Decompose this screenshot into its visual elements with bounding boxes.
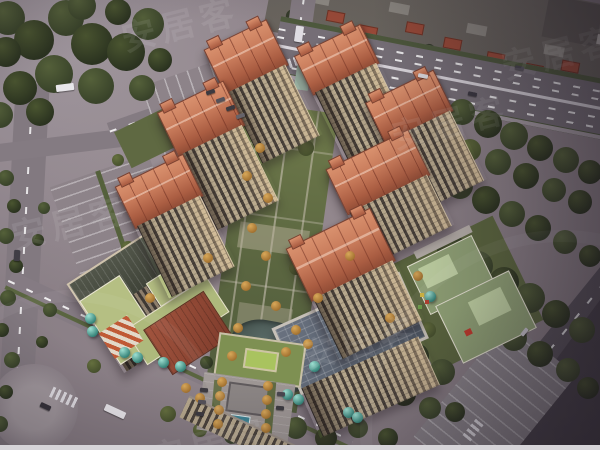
sphere-tree: [293, 394, 304, 405]
ornamental-tree: [263, 381, 273, 391]
ornamental-tree: [261, 251, 271, 261]
ornamental-tree: [203, 253, 213, 263]
ornamental-tree: [313, 293, 323, 303]
ornamental-tree: [233, 323, 243, 333]
vehicle: [277, 392, 285, 397]
tree-cluster: [26, 98, 54, 126]
ornamental-tree: [281, 347, 291, 357]
ornamental-tree: [271, 301, 281, 311]
tree-cluster: [9, 259, 23, 273]
far-building: [389, 2, 411, 16]
tree-cluster: [578, 160, 600, 184]
ornamental-tree: [242, 171, 252, 181]
tree-cluster: [112, 154, 124, 166]
tree-cluster: [527, 135, 553, 161]
aerial-rendering: 安居客 安居客 安居客 安居客 安居客 安居客: [0, 0, 600, 450]
far-red-roof: [405, 21, 425, 35]
tree-cluster: [472, 186, 500, 214]
tree-cluster: [499, 201, 525, 227]
ornamental-tree: [247, 223, 257, 233]
ornamental-tree: [255, 143, 265, 153]
tree-cluster: [485, 149, 511, 175]
bottom-border-strip: [0, 445, 600, 450]
tree-cluster: [542, 178, 566, 202]
ornamental-tree: [345, 251, 355, 261]
tree-cluster: [513, 163, 539, 189]
ornamental-tree: [145, 293, 155, 303]
tree-cluster: [553, 147, 579, 173]
ornamental-tree: [241, 281, 251, 291]
vehicle: [276, 406, 284, 411]
tree-cluster: [71, 23, 113, 65]
ornamental-tree: [263, 193, 273, 203]
tree-cluster: [129, 75, 155, 101]
tree-cluster: [78, 68, 114, 104]
tree-cluster: [568, 190, 592, 214]
ornamental-tree: [262, 395, 272, 405]
gate-lawn-panel: [243, 348, 279, 373]
far-red-roof: [326, 10, 346, 24]
ornamental-tree: [227, 351, 237, 361]
far-building: [466, 23, 488, 37]
ornamental-tree: [413, 271, 423, 281]
